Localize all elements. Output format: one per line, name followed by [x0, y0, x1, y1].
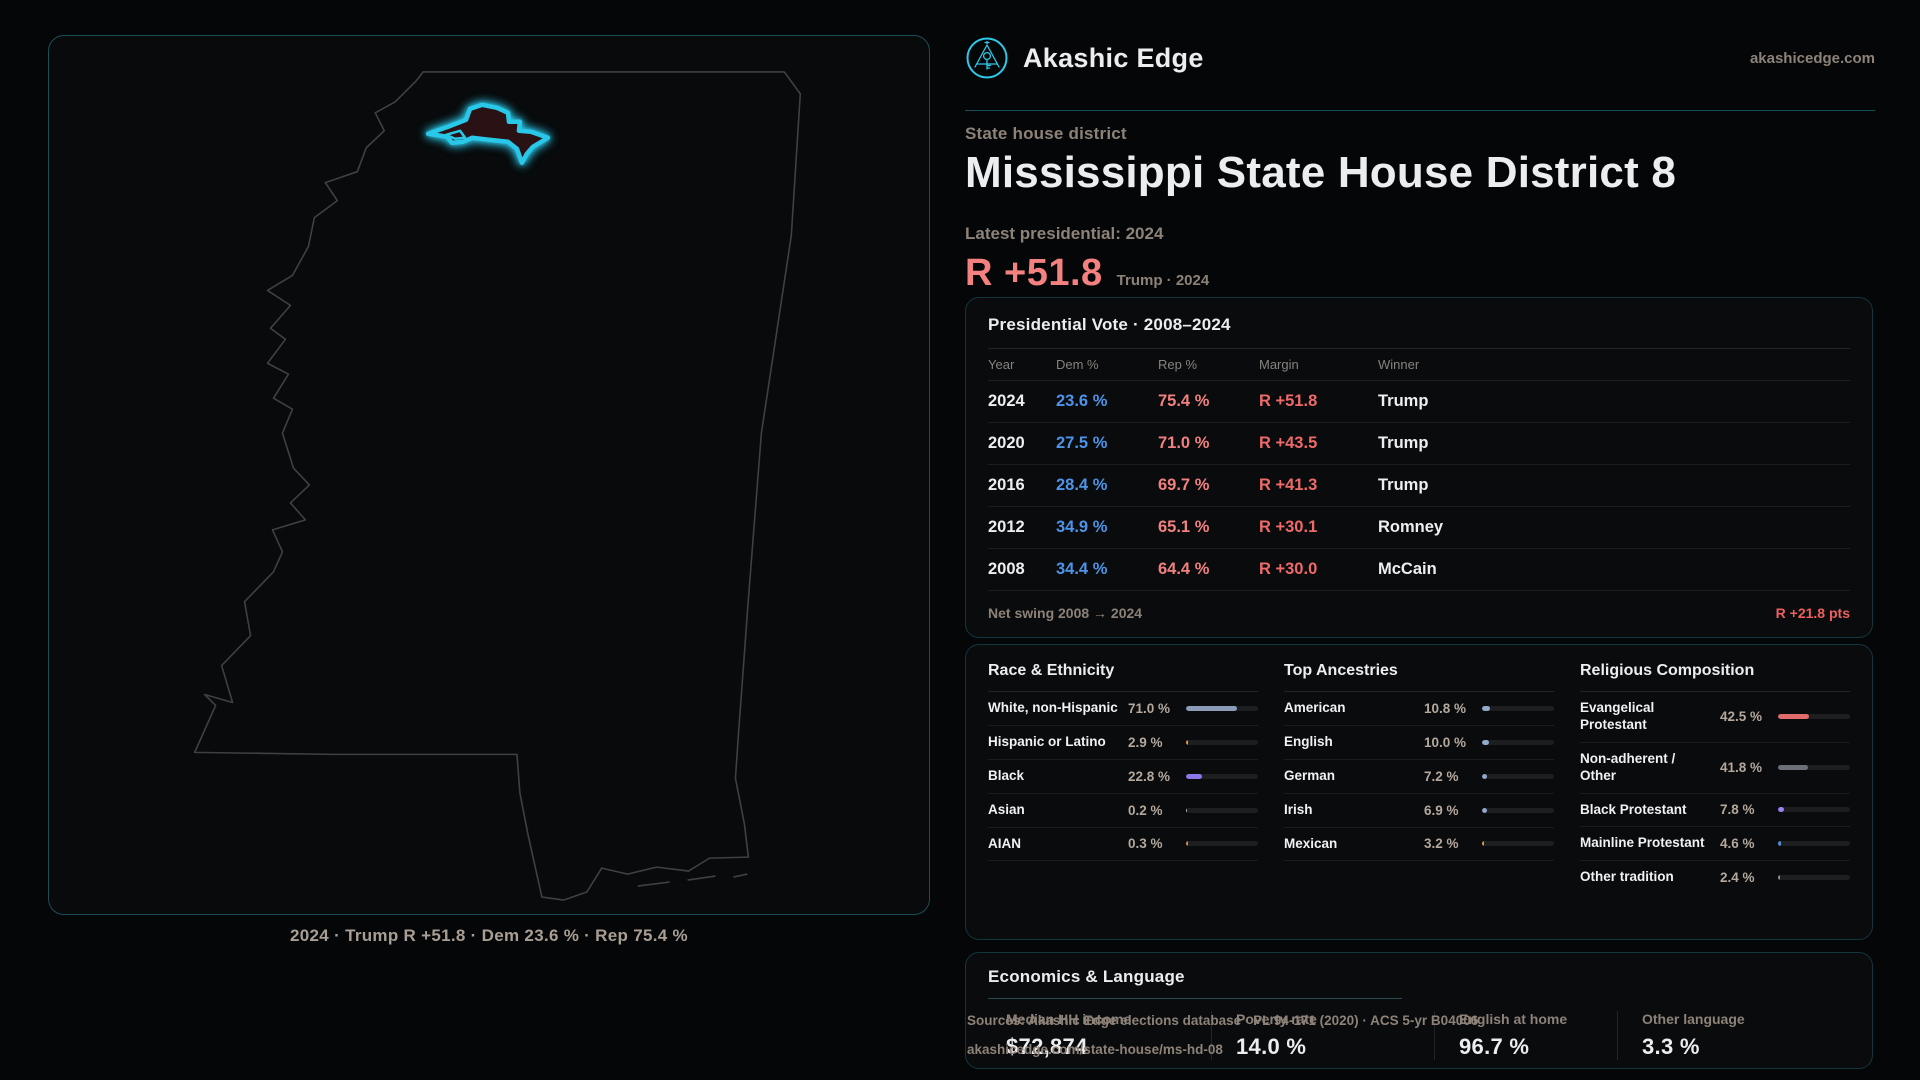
stat-bar-fill [1186, 774, 1202, 779]
stat-value: 10.8 % [1424, 701, 1482, 716]
stat-label: Mexican [1284, 836, 1424, 853]
demographics-panel: Race & Ethnicity White, non-Hispanic71.0… [965, 644, 1873, 940]
col-year: Year [988, 357, 1056, 372]
cell-year: 2016 [988, 476, 1056, 495]
stat-bar-fill [1186, 841, 1188, 846]
stat-bar [1186, 841, 1258, 846]
headline-margin-value: R +51.8 [965, 252, 1103, 295]
cell-rep: 65.1 % [1158, 518, 1259, 537]
brand-domain-link[interactable]: akashicedge.com [1750, 50, 1875, 67]
stat-bar-fill [1482, 706, 1490, 711]
race-ethnicity-column: Race & Ethnicity White, non-Hispanic71.0… [988, 662, 1258, 922]
stat-bar [1778, 765, 1850, 770]
stat-bar [1778, 807, 1850, 812]
stat-value: 0.3 % [1128, 836, 1186, 851]
page-title: Mississippi State House District 8 [965, 148, 1676, 198]
cell-dem: 34.4 % [1056, 560, 1158, 579]
stat-bar [1482, 706, 1554, 711]
latest-presidential-label: Latest presidential: 2024 [965, 224, 1163, 244]
cell-winner: Trump [1378, 392, 1850, 411]
stat-bar-fill [1778, 714, 1809, 719]
stat-row: Evangelical Protestant42.5 % [1580, 692, 1850, 743]
stat-bar [1482, 774, 1554, 779]
stat-row: Other tradition2.4 % [1580, 861, 1850, 894]
headline-margin-stat: R +51.8 Trump · 2024 [965, 252, 1209, 295]
stat-bar [1778, 714, 1850, 719]
cell-winner: McCain [1378, 560, 1850, 579]
economic-stat-label: Poverty rate [1236, 1011, 1434, 1027]
stat-bar-fill [1778, 807, 1784, 812]
cell-year: 2008 [988, 560, 1056, 579]
stat-bar [1186, 774, 1258, 779]
stat-bar-fill [1778, 841, 1781, 846]
stat-value: 7.8 % [1720, 802, 1778, 817]
header: Akashic Edge akashicedge.com [965, 36, 1875, 80]
stat-label: English [1284, 734, 1424, 751]
table-body: 202423.6 %75.4 %R +51.8Trump202027.5 %71… [988, 381, 1850, 591]
cell-year: 2024 [988, 392, 1056, 411]
header-divider [965, 110, 1875, 111]
stat-label: Non-adherent / Other [1580, 751, 1720, 785]
stat-bar-fill [1186, 706, 1237, 711]
cell-year: 2012 [988, 518, 1056, 537]
cell-margin: R +30.0 [1259, 560, 1378, 579]
brand-name: Akashic Edge [1023, 43, 1204, 74]
stat-row: Hispanic or Latino2.9 % [988, 726, 1258, 760]
stat-label: AIAN [988, 836, 1128, 853]
stat-label: Hispanic or Latino [988, 734, 1128, 751]
top-ancestries-title: Top Ancestries [1284, 662, 1554, 692]
stat-label: American [1284, 700, 1424, 717]
table-row: 201628.4 %69.7 %R +41.3Trump [988, 465, 1850, 507]
cell-margin: R +43.5 [1259, 434, 1378, 453]
stat-label: Black [988, 768, 1128, 785]
stat-bar-fill [1778, 765, 1808, 770]
net-swing-label: Net swing 2008 → 2024 [988, 605, 1142, 621]
headline-margin-sub: Trump · 2024 [1117, 272, 1210, 289]
stat-label: White, non-Hispanic [988, 700, 1128, 717]
stat-label: German [1284, 768, 1424, 785]
economic-stat-label: English at home [1459, 1011, 1617, 1027]
table-row: 202423.6 %75.4 %R +51.8Trump [988, 381, 1850, 423]
cell-year: 2020 [988, 434, 1056, 453]
religious-composition-column: Religious Composition Evangelical Protes… [1580, 662, 1850, 922]
cell-dem: 27.5 % [1056, 434, 1158, 453]
stat-bar [1778, 841, 1850, 846]
net-swing-value: R +21.8 pts [1776, 605, 1850, 621]
stat-bar [1186, 808, 1258, 813]
stat-bar [1482, 841, 1554, 846]
state-outline-path [195, 72, 801, 900]
stat-bar [1482, 740, 1554, 745]
coastal-islands [638, 874, 748, 886]
stat-label: Other tradition [1580, 869, 1720, 886]
cell-winner: Trump [1378, 476, 1850, 495]
col-dem: Dem % [1056, 357, 1158, 372]
stat-row: Asian0.2 % [988, 794, 1258, 828]
table-row: 202027.5 %71.0 %R +43.5Trump [988, 423, 1850, 465]
stat-label: Mainline Protestant [1580, 835, 1720, 852]
stat-bar-fill [1778, 875, 1780, 880]
stat-bar [1482, 808, 1554, 813]
stat-label: Asian [988, 802, 1128, 819]
cell-rep: 75.4 % [1158, 392, 1259, 411]
table-row: 200834.4 %64.4 %R +30.0McCain [988, 549, 1850, 591]
economic-stat-value: 96.7 % [1459, 1034, 1617, 1060]
akashic-edge-logo-icon [965, 36, 1009, 80]
stat-value: 0.2 % [1128, 803, 1186, 818]
detail-column: Akashic Edge akashicedge.com State house… [965, 0, 1875, 1080]
presidential-vote-panel: Presidential Vote · 2008–2024 Year Dem %… [965, 297, 1873, 638]
cell-dem: 23.6 % [1056, 392, 1158, 411]
stat-bar-fill [1482, 774, 1487, 779]
economic-stat-label: Median HH income [1006, 1011, 1211, 1027]
stat-label: Black Protestant [1580, 802, 1720, 819]
economic-stat-value: 3.3 % [1642, 1034, 1850, 1060]
cell-dem: 34.9 % [1056, 518, 1158, 537]
stat-row: Non-adherent / Other41.8 % [1580, 743, 1850, 794]
cell-rep: 69.7 % [1158, 476, 1259, 495]
stat-row: Black22.8 % [988, 760, 1258, 794]
stat-row: AIAN0.3 % [988, 828, 1258, 862]
religious-composition-title: Religious Composition [1580, 662, 1850, 692]
table-row: 201234.9 %65.1 %R +30.1Romney [988, 507, 1850, 549]
stat-row: White, non-Hispanic71.0 % [988, 692, 1258, 726]
stat-label: Evangelical Protestant [1580, 700, 1720, 734]
presidential-vote-title: Presidential Vote · 2008–2024 [988, 315, 1231, 334]
stat-row: Black Protestant7.8 % [1580, 794, 1850, 828]
cell-rep: 71.0 % [1158, 434, 1259, 453]
stat-row: American10.8 % [1284, 692, 1554, 726]
cell-winner: Romney [1378, 518, 1850, 537]
cell-rep: 64.4 % [1158, 560, 1259, 579]
stat-bar [1186, 740, 1258, 745]
col-rep: Rep % [1158, 357, 1259, 372]
stat-bar-fill [1482, 841, 1484, 846]
stat-value: 71.0 % [1128, 701, 1186, 716]
stat-row: English10.0 % [1284, 726, 1554, 760]
top-ancestries-column: Top Ancestries American10.8 %English10.0… [1284, 662, 1554, 922]
mississippi-map [49, 36, 929, 914]
cell-dem: 28.4 % [1056, 476, 1158, 495]
stat-bar-fill [1482, 740, 1489, 745]
map-caption: 2024 · Trump R +51.8 · Dem 23.6 % · Rep … [48, 926, 930, 946]
economics-title-divider [988, 998, 1402, 999]
stat-row: Mexican3.2 % [1284, 828, 1554, 862]
stat-row: Mainline Protestant4.6 % [1580, 827, 1850, 861]
race-ethnicity-title: Race & Ethnicity [988, 662, 1258, 692]
stat-bar [1186, 706, 1258, 711]
economic-stat: Other language3.3 % [1617, 1011, 1850, 1060]
stat-value: 2.9 % [1128, 735, 1186, 750]
stat-value: 41.8 % [1720, 760, 1778, 775]
stat-row: German7.2 % [1284, 760, 1554, 794]
stat-value: 7.2 % [1424, 769, 1482, 784]
cell-winner: Trump [1378, 434, 1850, 453]
stat-value: 22.8 % [1128, 769, 1186, 784]
permalink[interactable]: akashicedge.com/state-house/ms-hd-08 [967, 1035, 1478, 1064]
col-winner: Winner [1378, 357, 1850, 372]
stat-bar-fill [1482, 808, 1487, 813]
economic-stat-label: Other language [1642, 1011, 1850, 1027]
district-map-panel [48, 35, 930, 915]
col-margin: Margin [1259, 357, 1378, 372]
stat-value: 6.9 % [1424, 803, 1482, 818]
cell-margin: R +30.1 [1259, 518, 1378, 537]
stat-bar [1778, 875, 1850, 880]
stat-value: 42.5 % [1720, 709, 1778, 724]
net-swing-row: Net swing 2008 → 2024 R +21.8 pts [988, 591, 1850, 621]
stat-bar-fill [1186, 740, 1188, 745]
stat-value: 4.6 % [1720, 836, 1778, 851]
stat-value: 2.4 % [1720, 870, 1778, 885]
table-header-row: Year Dem % Rep % Margin Winner [988, 349, 1850, 381]
stat-row: Irish6.9 % [1284, 794, 1554, 828]
kicker: State house district [965, 124, 1127, 144]
stat-value: 10.0 % [1424, 735, 1482, 750]
cell-margin: R +41.3 [1259, 476, 1378, 495]
cell-margin: R +51.8 [1259, 392, 1378, 411]
stat-label: Irish [1284, 802, 1424, 819]
economics-title: Economics & Language [988, 967, 1185, 986]
stat-value: 3.2 % [1424, 836, 1482, 851]
